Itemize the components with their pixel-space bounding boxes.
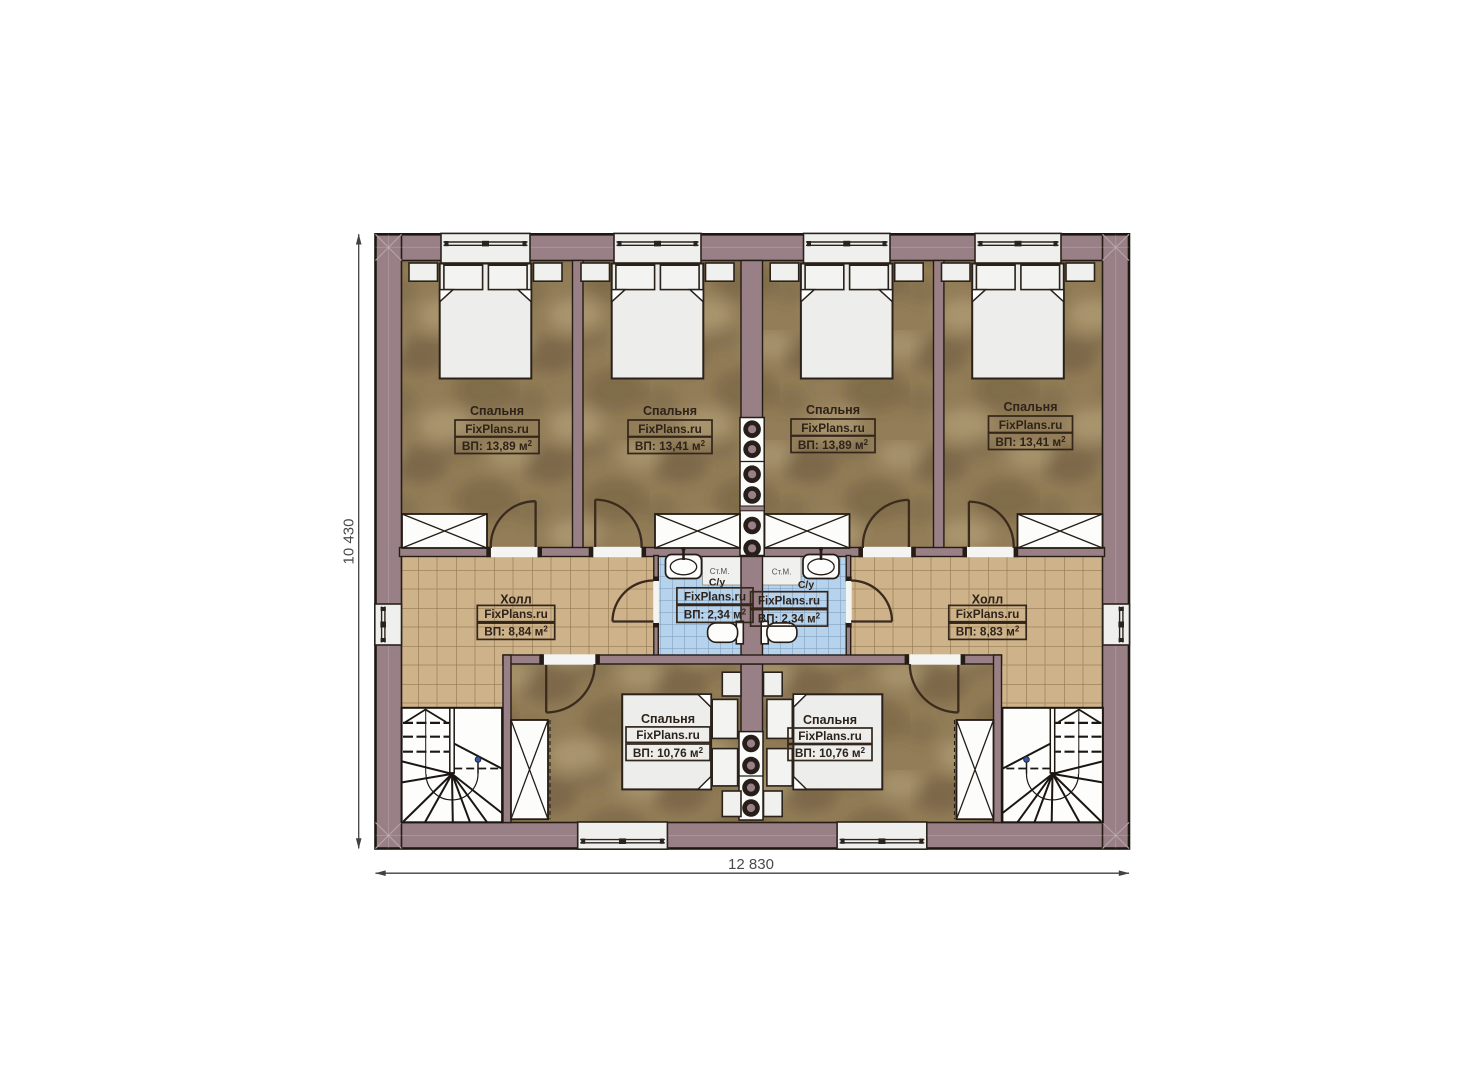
svg-text:С/у: С/у (798, 579, 815, 591)
svg-text:Спальня: Спальня (1004, 400, 1058, 414)
svg-text:Ст.М.: Ст.М. (772, 568, 792, 577)
svg-text:Спальня: Спальня (641, 712, 695, 726)
svg-text:Ст.М.: Ст.М. (710, 567, 730, 576)
svg-text:ВП: 8,83 м2: ВП: 8,83 м2 (956, 625, 1020, 639)
svg-text:ВП: 10,76 м2: ВП: 10,76 м2 (633, 746, 704, 760)
svg-text:FixPlans.ru: FixPlans.ru (999, 418, 1063, 432)
svg-text:FixPlans.ru: FixPlans.ru (636, 728, 700, 742)
svg-text:Спальня: Спальня (470, 404, 524, 418)
svg-text:FixPlans.ru: FixPlans.ru (801, 421, 865, 435)
svg-text:ВП: 13,41 м2: ВП: 13,41 м2 (635, 439, 706, 453)
svg-text:FixPlans.ru: FixPlans.ru (758, 595, 820, 607)
svg-text:ВП: 2,34 м2: ВП: 2,34 м2 (684, 607, 747, 621)
svg-text:10 430: 10 430 (341, 519, 358, 565)
svg-text:С/у: С/у (709, 577, 726, 589)
svg-text:ВП: 13,89 м2: ВП: 13,89 м2 (798, 438, 869, 452)
svg-text:Холл: Холл (500, 593, 531, 607)
svg-text:FixPlans.ru: FixPlans.ru (684, 591, 746, 603)
svg-text:Спальня: Спальня (803, 713, 857, 727)
svg-text:Холл: Холл (972, 593, 1003, 607)
svg-text:Спальня: Спальня (643, 404, 697, 418)
svg-text:FixPlans.ru: FixPlans.ru (798, 729, 862, 743)
svg-text:FixPlans.ru: FixPlans.ru (956, 607, 1020, 621)
svg-text:ВП: 13,41 м2: ВП: 13,41 м2 (995, 435, 1066, 449)
svg-text:FixPlans.ru: FixPlans.ru (484, 607, 548, 621)
svg-text:FixPlans.ru: FixPlans.ru (465, 422, 529, 436)
svg-text:FixPlans.ru: FixPlans.ru (638, 422, 702, 436)
svg-text:ВП: 2,34 м2: ВП: 2,34 м2 (758, 611, 821, 625)
svg-text:ВП: 13,89 м2: ВП: 13,89 м2 (462, 439, 533, 453)
svg-text:Спальня: Спальня (806, 403, 860, 417)
svg-text:12 830: 12 830 (728, 856, 774, 873)
svg-text:ВП: 10,76 м2: ВП: 10,76 м2 (795, 746, 866, 760)
svg-text:ВП: 8,84 м2: ВП: 8,84 м2 (484, 625, 548, 639)
